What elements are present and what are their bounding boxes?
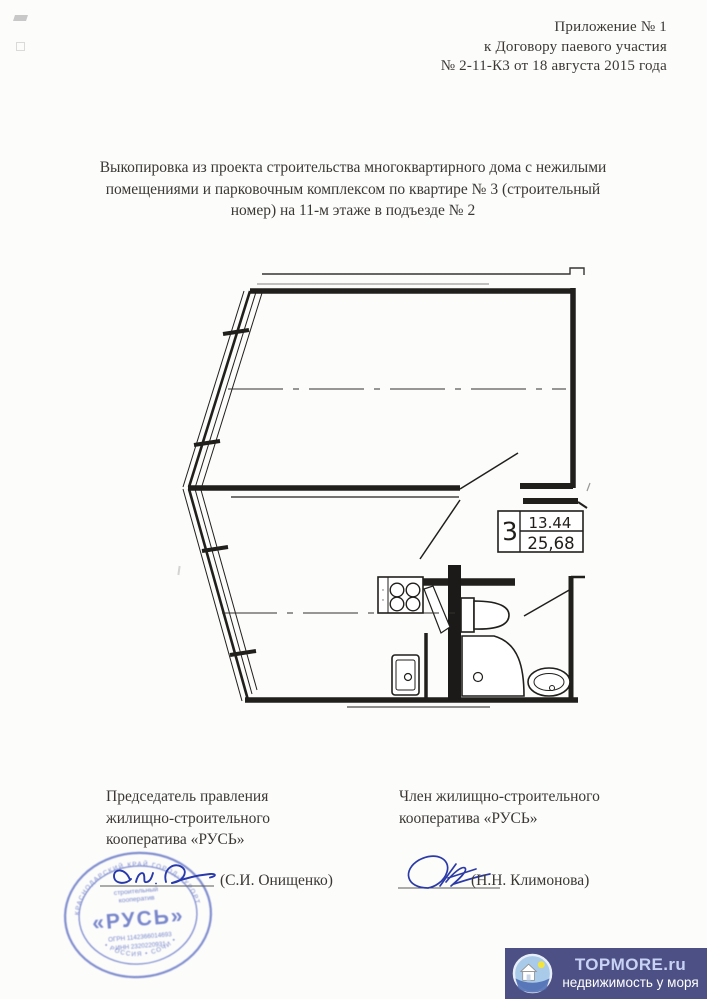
watermark-site-subtitle: недвижимость у моря [554, 976, 707, 991]
watermark-site-title[interactable]: TOPMORE.ru [554, 956, 707, 975]
title-line: жилищно-строительного [106, 808, 270, 830]
site-watermark-banner[interactable]: TOPMORE.ru недвижимость у моря [505, 948, 707, 999]
member-name: (Н.Н. Климонова) [471, 872, 589, 890]
kitchen-stove-icon [378, 577, 423, 613]
kitchen-sink-icon [392, 655, 419, 695]
document-description: Выкопировка из проекта строительства мно… [70, 157, 636, 222]
living-room-walls [188, 288, 587, 508]
header-line-appendix: Приложение № 1 [441, 18, 667, 38]
floor-plan-drawing: 3 13.44 25,68 [168, 253, 612, 715]
plan-outer-contour-line [257, 268, 584, 284]
title-line: Председатель правления [106, 786, 270, 808]
description-line: помещениями и парковочным комплексом по … [70, 179, 636, 201]
scan-artifact [16, 42, 25, 51]
watermark-text-block: TOPMORE.ru недвижимость у моря [554, 956, 707, 992]
total-area-label: 25,68 [527, 534, 574, 553]
duct-shaft-wall [448, 565, 461, 700]
header-line-number-date: № 2-11-К3 от 18 августа 2015 года [441, 57, 667, 77]
toilet-icon [461, 598, 509, 632]
watermark-house-logo-icon [511, 952, 554, 995]
chairman-signature-scribble [96, 846, 236, 894]
scan-artifact [13, 15, 28, 21]
document-header: Приложение № 1 к Договору паевого участи… [441, 18, 667, 77]
scanned-document-page: Приложение № 1 к Договору паевого участи… [0, 0, 707, 999]
header-line-contract: к Договору паевого участия [441, 38, 667, 58]
balcony-window-wall-lower [183, 489, 257, 701]
title-line: Член жилищно-строительного [399, 786, 600, 808]
scan-artifact [587, 483, 590, 491]
balcony-window-wall-upper [183, 291, 262, 489]
description-line: Выкопировка из проекта строительства мно… [70, 157, 636, 179]
member-title-block: Член жилищно-строительного кооператива «… [399, 786, 600, 829]
chairman-name: (С.И. Онищенко) [220, 872, 333, 890]
chairman-title-block: Председатель правления жилищно-строитель… [106, 786, 270, 851]
title-line: кооператива «РУСЬ» [399, 808, 600, 830]
living-area-label: 13.44 [529, 514, 572, 532]
unit-number-label: 3 [501, 517, 518, 547]
washbasin-icon [528, 668, 570, 696]
description-line: номер) на 11-м этаже в подъезде № 2 [70, 200, 636, 222]
shower-icon [462, 636, 524, 696]
